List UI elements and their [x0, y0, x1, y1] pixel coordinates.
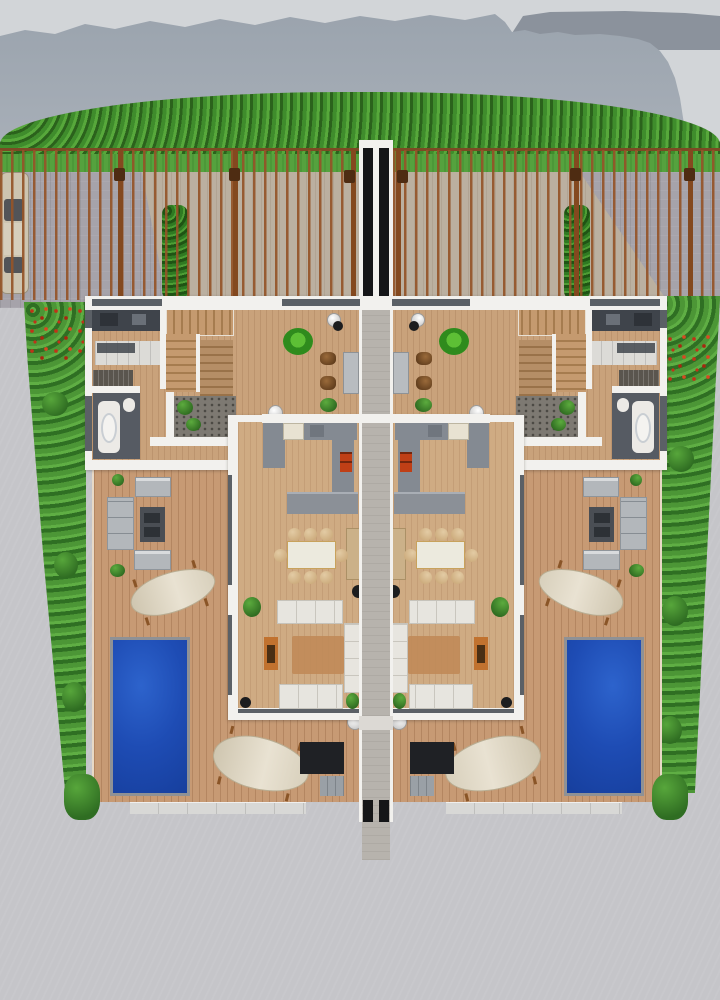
fence-post-cap: [344, 170, 355, 183]
gravel-patio: [516, 396, 578, 437]
living-block-right-unit: [392, 415, 524, 720]
fire-table: [589, 507, 614, 542]
sideboard-front: [477, 645, 485, 663]
desk-chair: [320, 376, 336, 390]
fridge: [448, 423, 469, 440]
area-rug: [292, 636, 344, 674]
indoor-plant: [491, 597, 509, 617]
dining-chair: [419, 528, 432, 541]
patio-wall-bottom: [150, 437, 236, 446]
sideboard: [474, 637, 488, 670]
facade-glazing: [282, 299, 360, 306]
bathroom-sink: [617, 398, 629, 412]
pantry-shelves: [93, 370, 133, 386]
potted-plant: [630, 474, 642, 486]
kitchen-island: [287, 492, 358, 514]
kitchen-counter: [92, 309, 162, 331]
cabinet-glass-front: [617, 343, 655, 353]
bathtub: [632, 401, 654, 453]
dining-chair: [419, 571, 432, 584]
garden-bush: [62, 682, 86, 712]
dining-chair: [288, 571, 301, 584]
staircase-upper-flight: [166, 309, 234, 336]
stair-divider: [552, 334, 556, 392]
kitchen-cabinets: [590, 341, 657, 365]
bathroom: [93, 393, 140, 459]
cabinet-glass-front: [97, 343, 135, 353]
kitchen-counter: [590, 309, 660, 331]
bathtub-basin: [635, 413, 651, 443]
dining-chair: [335, 549, 348, 562]
corner-bush-left: [64, 774, 100, 820]
kitchen-side-counter: [467, 440, 489, 468]
west-glass-wall: [520, 475, 524, 585]
patio-shrub: [186, 418, 201, 431]
central-walkway: [359, 140, 393, 822]
sofa: [277, 600, 343, 624]
walkway-end-mark: [379, 800, 389, 822]
potted-plant: [629, 564, 644, 577]
kitchen-window: [85, 310, 92, 328]
outdoor-bench: [410, 776, 434, 796]
sideboard-front: [267, 645, 275, 663]
staircase-upper-flight: [518, 309, 586, 336]
kitchen-island: [394, 492, 465, 514]
sun-lounger: [439, 727, 547, 801]
patio-shrub: [551, 418, 566, 431]
bathroom-window: [85, 396, 92, 451]
desk-chair: [320, 352, 336, 365]
fire-bowl: [594, 513, 610, 523]
outdoor-sofa: [583, 550, 620, 570]
outdoor-sofa: [620, 497, 647, 550]
dining-chair: [451, 571, 464, 584]
lamp-base: [409, 321, 419, 331]
indoor-plant: [243, 597, 261, 617]
indoor-plant: [346, 693, 359, 709]
fence-post-cap: [229, 168, 240, 181]
fridge: [283, 423, 304, 440]
slatted-fence-left: [0, 150, 359, 300]
cooktop: [100, 313, 118, 326]
walkway-dark-lane: [363, 148, 373, 300]
outdoor-bench: [320, 776, 344, 796]
bathtub: [98, 401, 120, 453]
red-flowers: [26, 306, 84, 360]
dining-chair: [274, 549, 287, 562]
bathroom-wall: [92, 386, 140, 393]
aerial-floorplan-render: [0, 0, 720, 1000]
fence-post-cap: [114, 168, 125, 181]
fire-bowl: [594, 527, 610, 537]
dining-chair: [288, 528, 301, 541]
patio-wall: [166, 392, 174, 440]
porch-plant: [320, 398, 337, 412]
fire-table: [140, 507, 165, 542]
west-glass-wall: [228, 475, 232, 585]
patio-wall-bottom: [516, 437, 602, 446]
kitchen-sink: [132, 314, 146, 325]
outdoor-tv-table: [300, 742, 344, 774]
stove: [340, 452, 352, 472]
cooktop: [634, 313, 652, 326]
fire-bowl: [144, 513, 160, 523]
kitchen-partition-wall: [262, 414, 490, 423]
bathroom-wall: [612, 386, 660, 393]
dining-table: [287, 541, 336, 569]
dining-chair: [304, 528, 317, 541]
outdoor-sofa: [583, 477, 619, 497]
staircase-right-flight: [200, 340, 233, 398]
front-facade-wall: [85, 296, 667, 310]
kitchen-stair-wall: [585, 305, 592, 389]
swimming-pool: [110, 637, 190, 796]
walkway-dark-lane: [379, 148, 389, 300]
facade-glazing: [392, 299, 470, 306]
sofa: [409, 684, 473, 709]
stove: [400, 452, 412, 472]
garden-bush: [54, 552, 78, 578]
potted-plant: [112, 474, 124, 486]
kitchen-cabinets: [95, 341, 162, 365]
dining-chair: [435, 571, 448, 584]
porch-plant: [415, 398, 432, 412]
fire-bowl: [144, 527, 160, 537]
garden-bush: [662, 596, 688, 626]
gravel-patio: [174, 396, 236, 437]
area-rug: [408, 636, 460, 674]
deck-step-left: [130, 802, 306, 814]
potted-plant: [110, 564, 125, 577]
garden-bush: [668, 446, 694, 472]
dining-chair: [304, 571, 317, 584]
dining-chair: [451, 528, 464, 541]
sun-lounger: [207, 727, 315, 801]
study-desk: [393, 352, 409, 394]
south-glass-wall: [238, 709, 360, 713]
red-flowers: [664, 334, 712, 384]
garden-bush: [42, 392, 68, 416]
floor-lamp: [240, 697, 251, 708]
lamp-base: [333, 321, 343, 331]
bathroom-window: [660, 396, 667, 451]
study-desk: [343, 352, 359, 394]
indoor-plant: [393, 693, 406, 709]
dining-chair: [320, 571, 333, 584]
west-glass-wall: [228, 615, 232, 695]
patio-wall: [578, 392, 586, 440]
dining-chair: [465, 549, 478, 562]
living-block-left-unit: [228, 415, 360, 720]
sideboard: [264, 637, 278, 670]
sofa: [409, 600, 475, 624]
patio-shrub: [559, 400, 575, 415]
fence-post-cap: [570, 168, 581, 181]
swimming-pool: [564, 637, 644, 796]
fence-post-cap: [684, 168, 695, 181]
staircase-left-flight: [556, 334, 586, 392]
kitchen-sink: [310, 425, 324, 437]
walkway-cross-band: [359, 716, 393, 730]
facade-glazing: [590, 299, 660, 306]
staircase-left-flight: [166, 334, 196, 392]
bathroom: [612, 393, 659, 459]
sofa: [279, 684, 343, 709]
pantry-shelves: [619, 370, 659, 386]
dining-chair: [435, 528, 448, 541]
round-green-rug: [283, 328, 313, 355]
staircase-right-flight: [519, 340, 552, 398]
floor-lamp: [501, 697, 512, 708]
kitchen-wall-counter: [395, 422, 489, 440]
bathtub-basin: [101, 413, 117, 443]
kitchen-sink: [606, 314, 620, 325]
patio-shrub: [177, 400, 193, 415]
outdoor-tv-table: [410, 742, 454, 774]
desk-chair: [416, 376, 432, 390]
slatted-fence-right: [393, 150, 720, 300]
outdoor-sofa: [107, 497, 134, 550]
outdoor-sofa: [135, 477, 171, 497]
kitchen-window: [660, 310, 667, 328]
kitchen-side-counter: [263, 440, 285, 468]
west-glass-wall: [520, 615, 524, 695]
dining-table: [416, 541, 465, 569]
desk-chair: [416, 352, 432, 365]
fence-post-cap: [397, 170, 408, 183]
bathroom-sink: [123, 398, 135, 412]
outdoor-sofa: [134, 550, 171, 570]
south-glass-wall: [392, 709, 514, 713]
dining-chair: [320, 528, 333, 541]
round-green-rug: [439, 328, 469, 355]
walkway-end-mark: [363, 800, 373, 822]
facade-glazing: [92, 299, 162, 306]
corner-bush-right: [652, 774, 688, 820]
kitchen-sink: [428, 425, 442, 437]
deck-step-right: [446, 802, 622, 814]
